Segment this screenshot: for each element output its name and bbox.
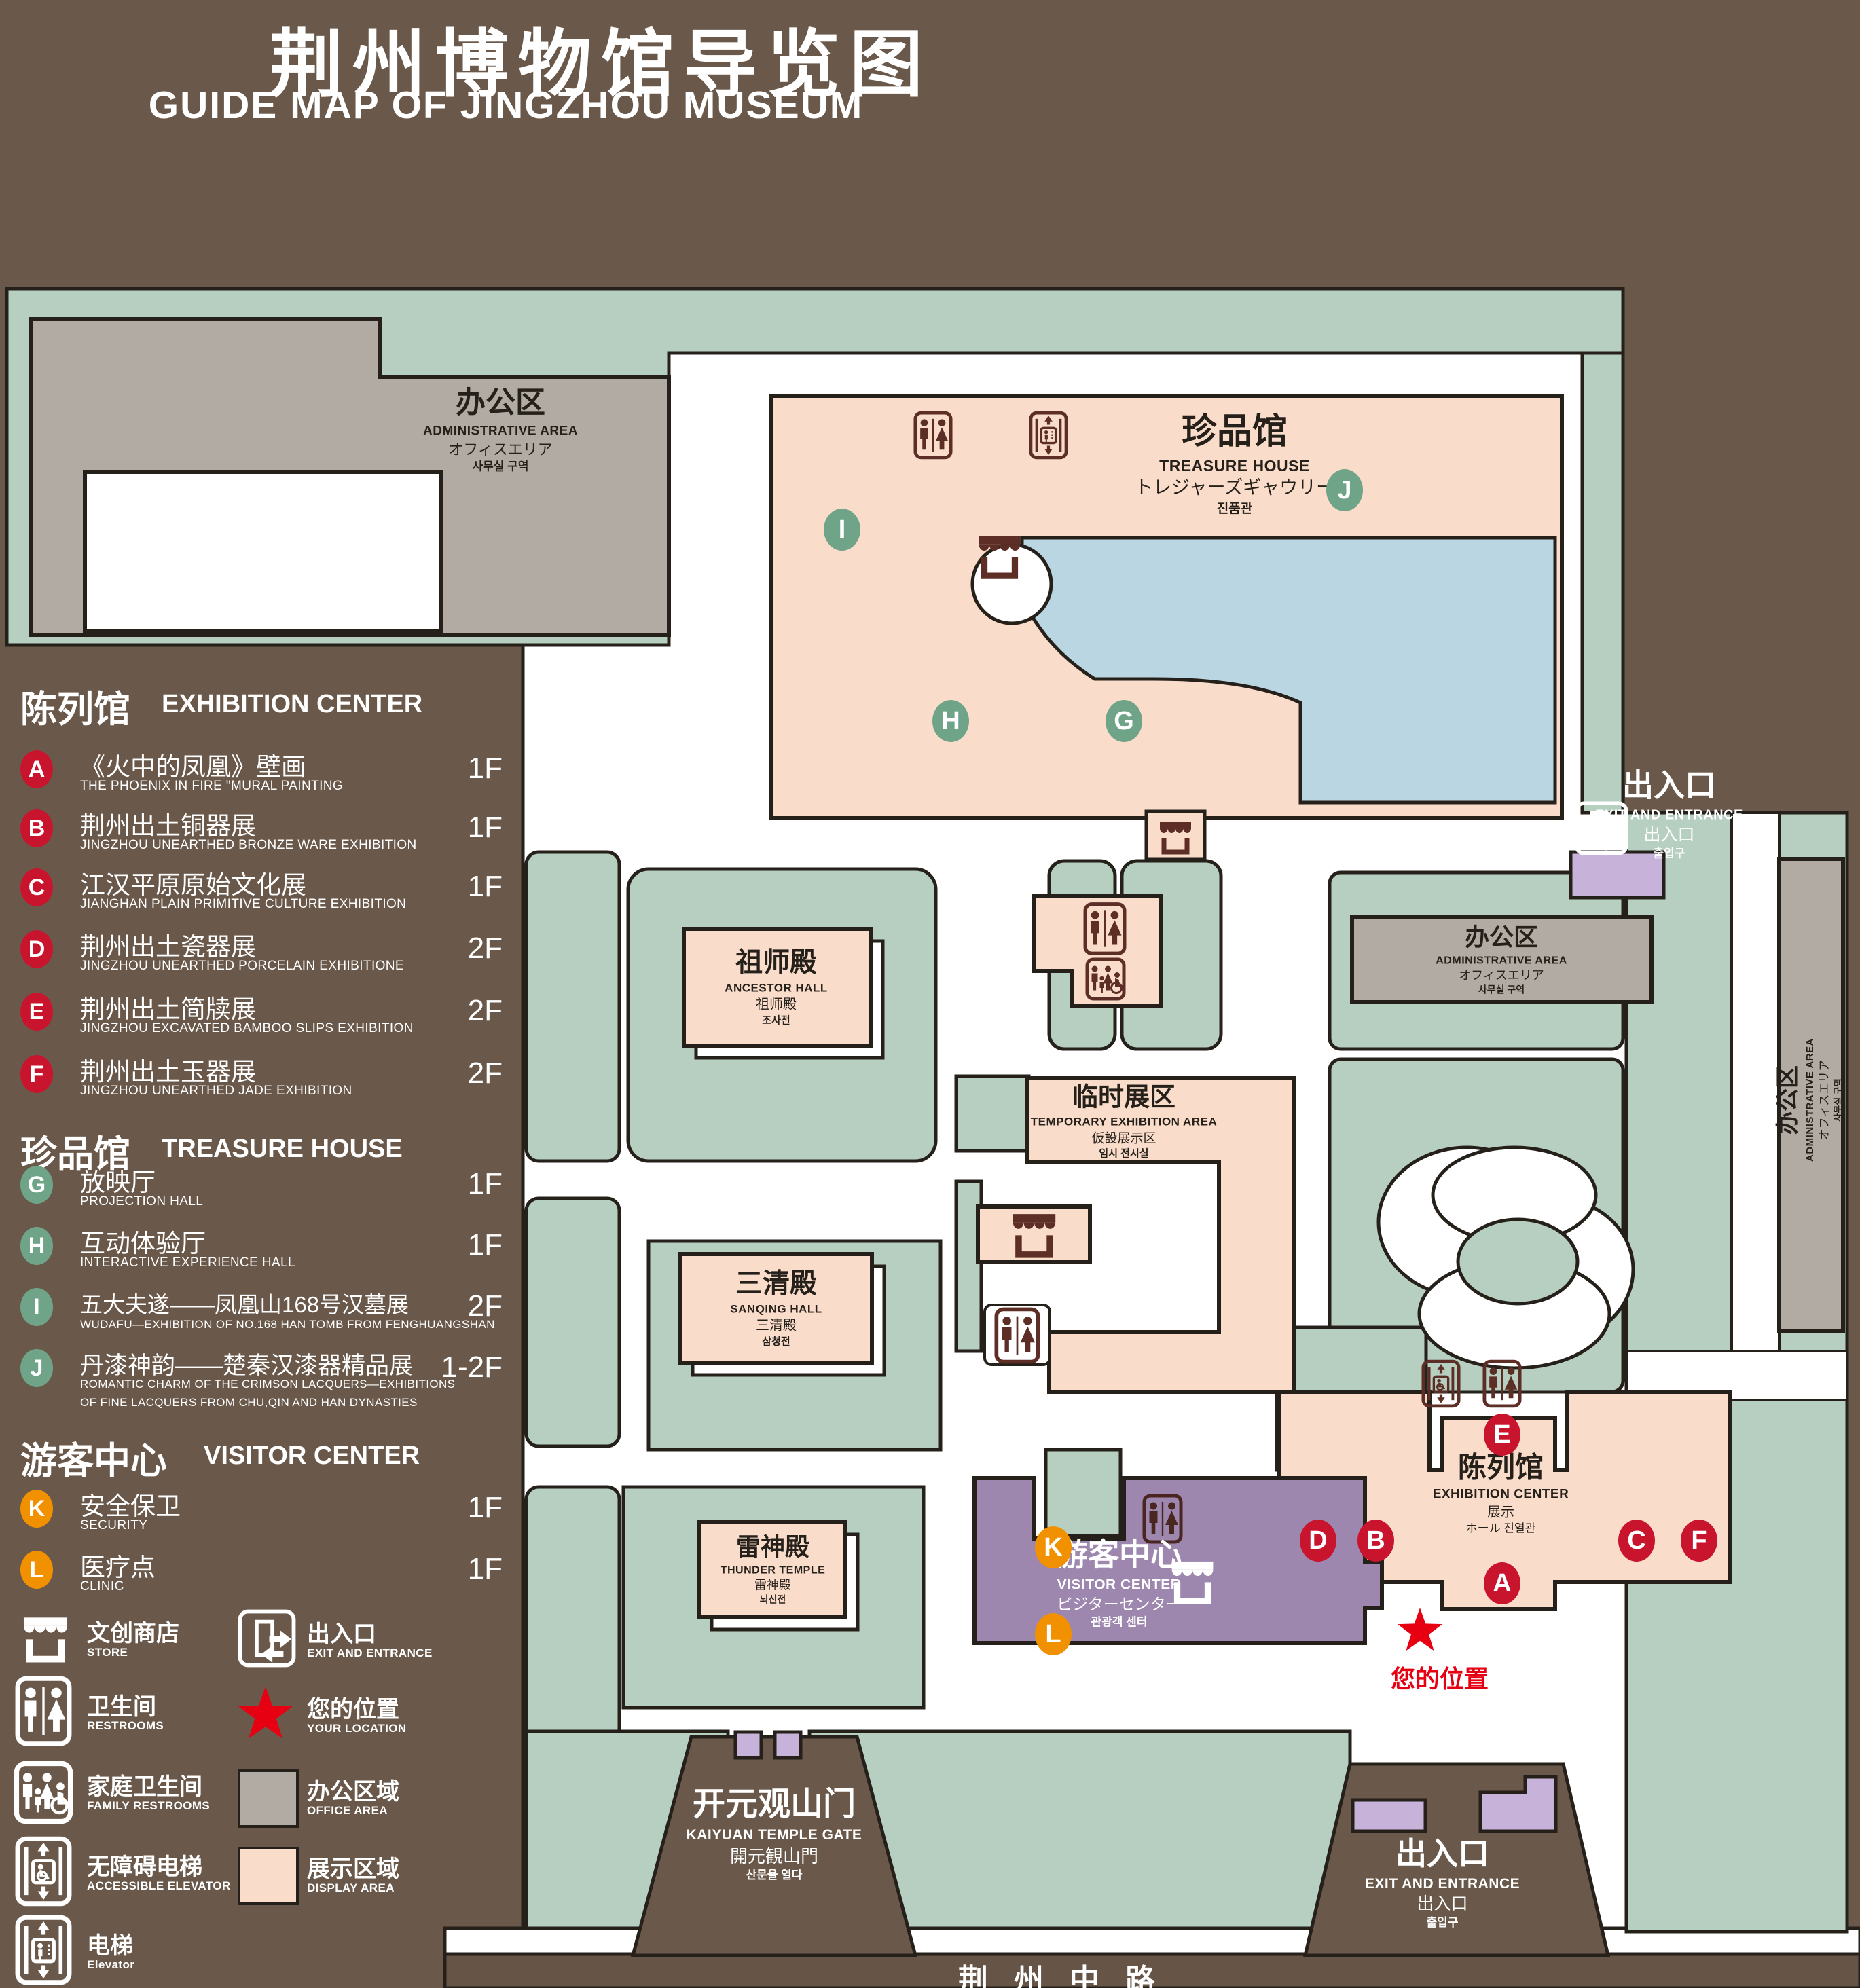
legend-marker-l[interactable]: L — [20, 1551, 53, 1589]
legend-marker-k[interactable]: K — [20, 1490, 53, 1528]
legend-item-title: 互动体验厅 — [80, 1223, 206, 1259]
map-marker-c[interactable]: C — [1618, 1520, 1655, 1562]
legend-item-subtitle: INTERACTIVE EXPERIENCE HALL — [80, 1255, 295, 1270]
exit-label-east: 出入口 EXIT AND ENTRANCE 出入口 출입구 — [1595, 765, 1743, 862]
legend-symbol-restrooms: 卫生间 — [87, 1688, 156, 1721]
legend-item-title: 安全保卫 — [80, 1486, 181, 1522]
legend-marker-j[interactable]: J — [20, 1349, 53, 1387]
map-marker-g[interactable]: G — [1106, 700, 1142, 742]
map-marker-b[interactable]: B — [1357, 1520, 1394, 1562]
legend-marker-f[interactable]: F — [20, 1055, 53, 1093]
map-marker-i[interactable]: I — [824, 509, 860, 551]
legend-marker-a[interactable]: A — [20, 750, 53, 788]
exit-label-south: 出入口 EXIT AND ENTRANCE 出入口 출입구 — [1365, 1833, 1520, 1931]
legend-symbol-store-en: STORE — [87, 1646, 128, 1659]
restroom-icon — [1482, 1359, 1522, 1408]
store-icon — [16, 1612, 75, 1665]
legend-item-title: 丹漆神韵——楚秦汉漆器精品展 — [80, 1346, 413, 1381]
road-name: 荆州中路 — [958, 1955, 1181, 1988]
legend-item-subtitle: JIANGHAN PLAIN PRIMITIVE CULTURE EXHIBIT… — [80, 897, 406, 912]
map-marker-h[interactable]: H — [932, 700, 969, 742]
south-gate-left — [1353, 1800, 1425, 1831]
lawn-visitor-notch — [1046, 1450, 1120, 1536]
legend-item-floor: 2F — [380, 1289, 503, 1323]
accessible-elevator-icon — [14, 1836, 73, 1907]
legend-item-title: 放映厅 — [80, 1162, 156, 1198]
legend-item-title: 江汉平原原始文化展 — [80, 864, 306, 901]
legend-item-subtitle: THE PHOENIX IN FIRE "MURAL PAINTING — [80, 779, 343, 794]
kaiyuan-gate-right — [775, 1732, 801, 1758]
admin-right-label: 办公区 ADMINISTRATIVE AREA オフィスエリア 사무실 구역 — [1773, 1038, 1844, 1162]
map-marker-j[interactable]: J — [1326, 469, 1363, 511]
lawn-small-1 — [956, 1076, 1029, 1151]
family-restroom-icon — [14, 1760, 73, 1825]
legend-symbol-elevator: 电梯 — [87, 1927, 133, 1960]
your-location-label: 您的位置 — [1391, 1659, 1489, 1695]
legend-marker-b[interactable]: B — [20, 809, 53, 847]
legend-section-exhibition: 陈列馆 — [20, 679, 130, 733]
kaiyuan-gate-left — [735, 1732, 761, 1758]
elevator-icon — [1029, 407, 1068, 463]
legend-item-title: 五大夫遂——凤凰山168号汉墓展 — [80, 1287, 409, 1319]
legend-item-floor: 1F — [380, 811, 503, 845]
legend-item-floor: 2F — [380, 932, 503, 965]
exhibition-center-label: 陈列馆 EXHIBITION CENTER 展示 ホール 진열관 — [1433, 1448, 1569, 1536]
map-marker-f[interactable]: F — [1681, 1520, 1717, 1562]
sanqing-hall-label: 三清殿 SANQING HALL 三清殿 삼청전 — [730, 1266, 822, 1348]
thunder-temple-label: 雷神殿 THUNDER TEMPLE 雷神殿 뇌신전 — [721, 1531, 826, 1606]
your-location-star-icon — [1396, 1608, 1444, 1653]
map-marker-k[interactable]: K — [1035, 1526, 1072, 1568]
restroom-icon — [913, 407, 953, 463]
store-icon — [972, 531, 1027, 581]
admin-nw-label: 办公区 ADMINISTRATIVE AREA オフィスエリア 사무실 구역 — [423, 384, 578, 475]
legend-item-title: 荆州出土瓷器展 — [80, 926, 256, 963]
legend-symbol-store: 文创商店 — [87, 1615, 179, 1648]
legend-item-floor: 1F — [380, 1491, 503, 1525]
store-icon — [1154, 818, 1197, 856]
legend-symbol-accessible-en: ACCESSIBLE ELEVATOR — [87, 1879, 231, 1893]
legend-item-floor: 1F — [380, 1552, 503, 1586]
display-area-swatch — [238, 1847, 299, 1905]
legend-item-floor: 1F — [380, 752, 503, 786]
legend-item-subtitle: SECURITY — [80, 1518, 147, 1533]
elevator-icon — [14, 1915, 73, 1985]
legend-symbol-display: 展示区域 — [307, 1850, 399, 1883]
exit-icon — [238, 1609, 296, 1668]
guide-map-poster: 荆州博物馆导览图 GUIDE MAP OF JINGZHOU MUSEUM — [0, 0, 1860, 1988]
legend-section-exhibition-en: EXHIBITION CENTER — [162, 690, 422, 719]
legend-item-floor: 2F — [380, 1056, 503, 1090]
map-marker-l[interactable]: L — [1035, 1613, 1072, 1655]
temporary-exhibition-label: 临时展区 TEMPORARY EXHIBITION AREA 仮設展示区 임시 … — [1031, 1080, 1217, 1160]
legend-item-floor: 1F — [380, 870, 503, 904]
legend-marker-d[interactable]: D — [20, 930, 53, 968]
treasure-house-label: 珍品馆 TREASURE HOUSE トレジャーズギャウリー 진품관 — [1135, 409, 1334, 517]
kaiyuan-gate-label: 开元观山门 KAIYUAN TEMPLE GATE 開元観山門 산문을 열다 — [687, 1783, 862, 1883]
legend-symbol-family-en: FAMILY RESTROOMS — [87, 1799, 210, 1813]
your-location-star-icon — [236, 1687, 295, 1741]
restroom-icon — [1083, 902, 1127, 956]
legend-section-visitor-en: VISITOR CENTER — [204, 1441, 420, 1471]
legend-symbol-restrooms-en: RESTROOMS — [87, 1719, 164, 1733]
legend-item-title: 《火中的凤凰》壁画 — [80, 746, 306, 783]
map-marker-a[interactable]: A — [1484, 1562, 1520, 1604]
legend-item-floor: 1F — [380, 1228, 503, 1262]
legend-item-title: 荆州出土玉器展 — [80, 1051, 256, 1088]
legend-item-floor: 1F — [380, 1167, 503, 1201]
legend-item-title: 荆州出土简牍展 — [80, 989, 256, 1025]
lawn-east-strip — [1582, 353, 1623, 813]
legend-symbol-display-en: DISPLAY AREA — [307, 1881, 395, 1895]
legend-marker-i[interactable]: I — [20, 1288, 53, 1326]
legend-symbol-office: 办公区域 — [307, 1773, 399, 1806]
legend-symbol-location-en: YOUR LOCATION — [307, 1722, 407, 1735]
admin-east-label: 办公区 ADMINISTRATIVE AREA オフィスエリア 사무실 구역 — [1436, 921, 1567, 997]
legend-marker-g[interactable]: G — [20, 1166, 53, 1204]
legend-item-subtitle: JINGZHOU UNEARTHED BRONZE WARE EXHIBITIO… — [80, 838, 417, 853]
accessible-elevator-icon — [1421, 1359, 1461, 1408]
legend-item-title: 荆州出土铜器展 — [80, 805, 256, 842]
lawn-west-2 — [526, 1198, 619, 1446]
admin-nw-courtyard — [85, 472, 441, 631]
legend-symbol-office-en: OFFICE AREA — [307, 1804, 388, 1818]
legend-marker-e[interactable]: E — [20, 993, 53, 1031]
restroom-icon — [993, 1307, 1041, 1364]
legend-item-subtitle: JINGZHOU UNEARTHED JADE EXHIBITION — [80, 1084, 352, 1099]
legend-item-subtitle: OF FINE LACQUERS FROM CHU,QIN AND HAN DY… — [80, 1396, 418, 1410]
lawn-west-1 — [526, 852, 619, 1161]
legend-marker-c[interactable]: C — [20, 868, 53, 906]
legend-item-title: 医疗点 — [80, 1547, 156, 1583]
legend-item-subtitle: PROJECTION HALL — [80, 1194, 203, 1209]
map-marker-d[interactable]: D — [1300, 1520, 1336, 1562]
legend-item-floor: 1-2F — [380, 1350, 503, 1384]
map-marker-e[interactable]: E — [1484, 1414, 1520, 1456]
legend-section-treasure-en: TREASURE HOUSE — [162, 1135, 403, 1164]
legend-symbol-elevator-en: Elevator — [87, 1958, 134, 1972]
legend-section-visitor: 游客中心 — [20, 1431, 167, 1484]
legend-item-subtitle: JINGZHOU UNEARTHED PORCELAIN EXHIBITIONE — [80, 959, 404, 974]
legend-symbol-exit: 出入口 — [307, 1615, 376, 1649]
legend-symbol-accessible: 无障碍电梯 — [87, 1848, 202, 1881]
office-area-swatch — [238, 1769, 299, 1828]
legend-symbol-family: 家庭卫生间 — [87, 1768, 202, 1801]
legend-item-subtitle: CLINIC — [80, 1579, 124, 1594]
legend-item-floor: 2F — [380, 994, 503, 1028]
family-restroom-icon — [1084, 957, 1127, 1001]
path-east-vertical — [1732, 813, 1779, 1352]
restroom-icon — [14, 1676, 73, 1746]
visitor-center-label: 游客中心 VISITOR CENTER ビジターセンター 관광객 센터 — [1057, 1534, 1182, 1630]
legend-symbol-exit-en: EXIT AND ENTRANCE — [307, 1646, 433, 1660]
ancestor-hall-label: 祖师殿 ANCESTOR HALL 祖师殿 조사전 — [725, 944, 828, 1027]
legend-item-subtitle: JINGZHOU EXCAVATED BAMBOO SLIPS EXHIBITI… — [80, 1021, 414, 1036]
legend-marker-h[interactable]: H — [20, 1227, 53, 1265]
legend-symbol-location: 您的位置 — [307, 1691, 399, 1724]
store-icon — [1006, 1209, 1062, 1260]
